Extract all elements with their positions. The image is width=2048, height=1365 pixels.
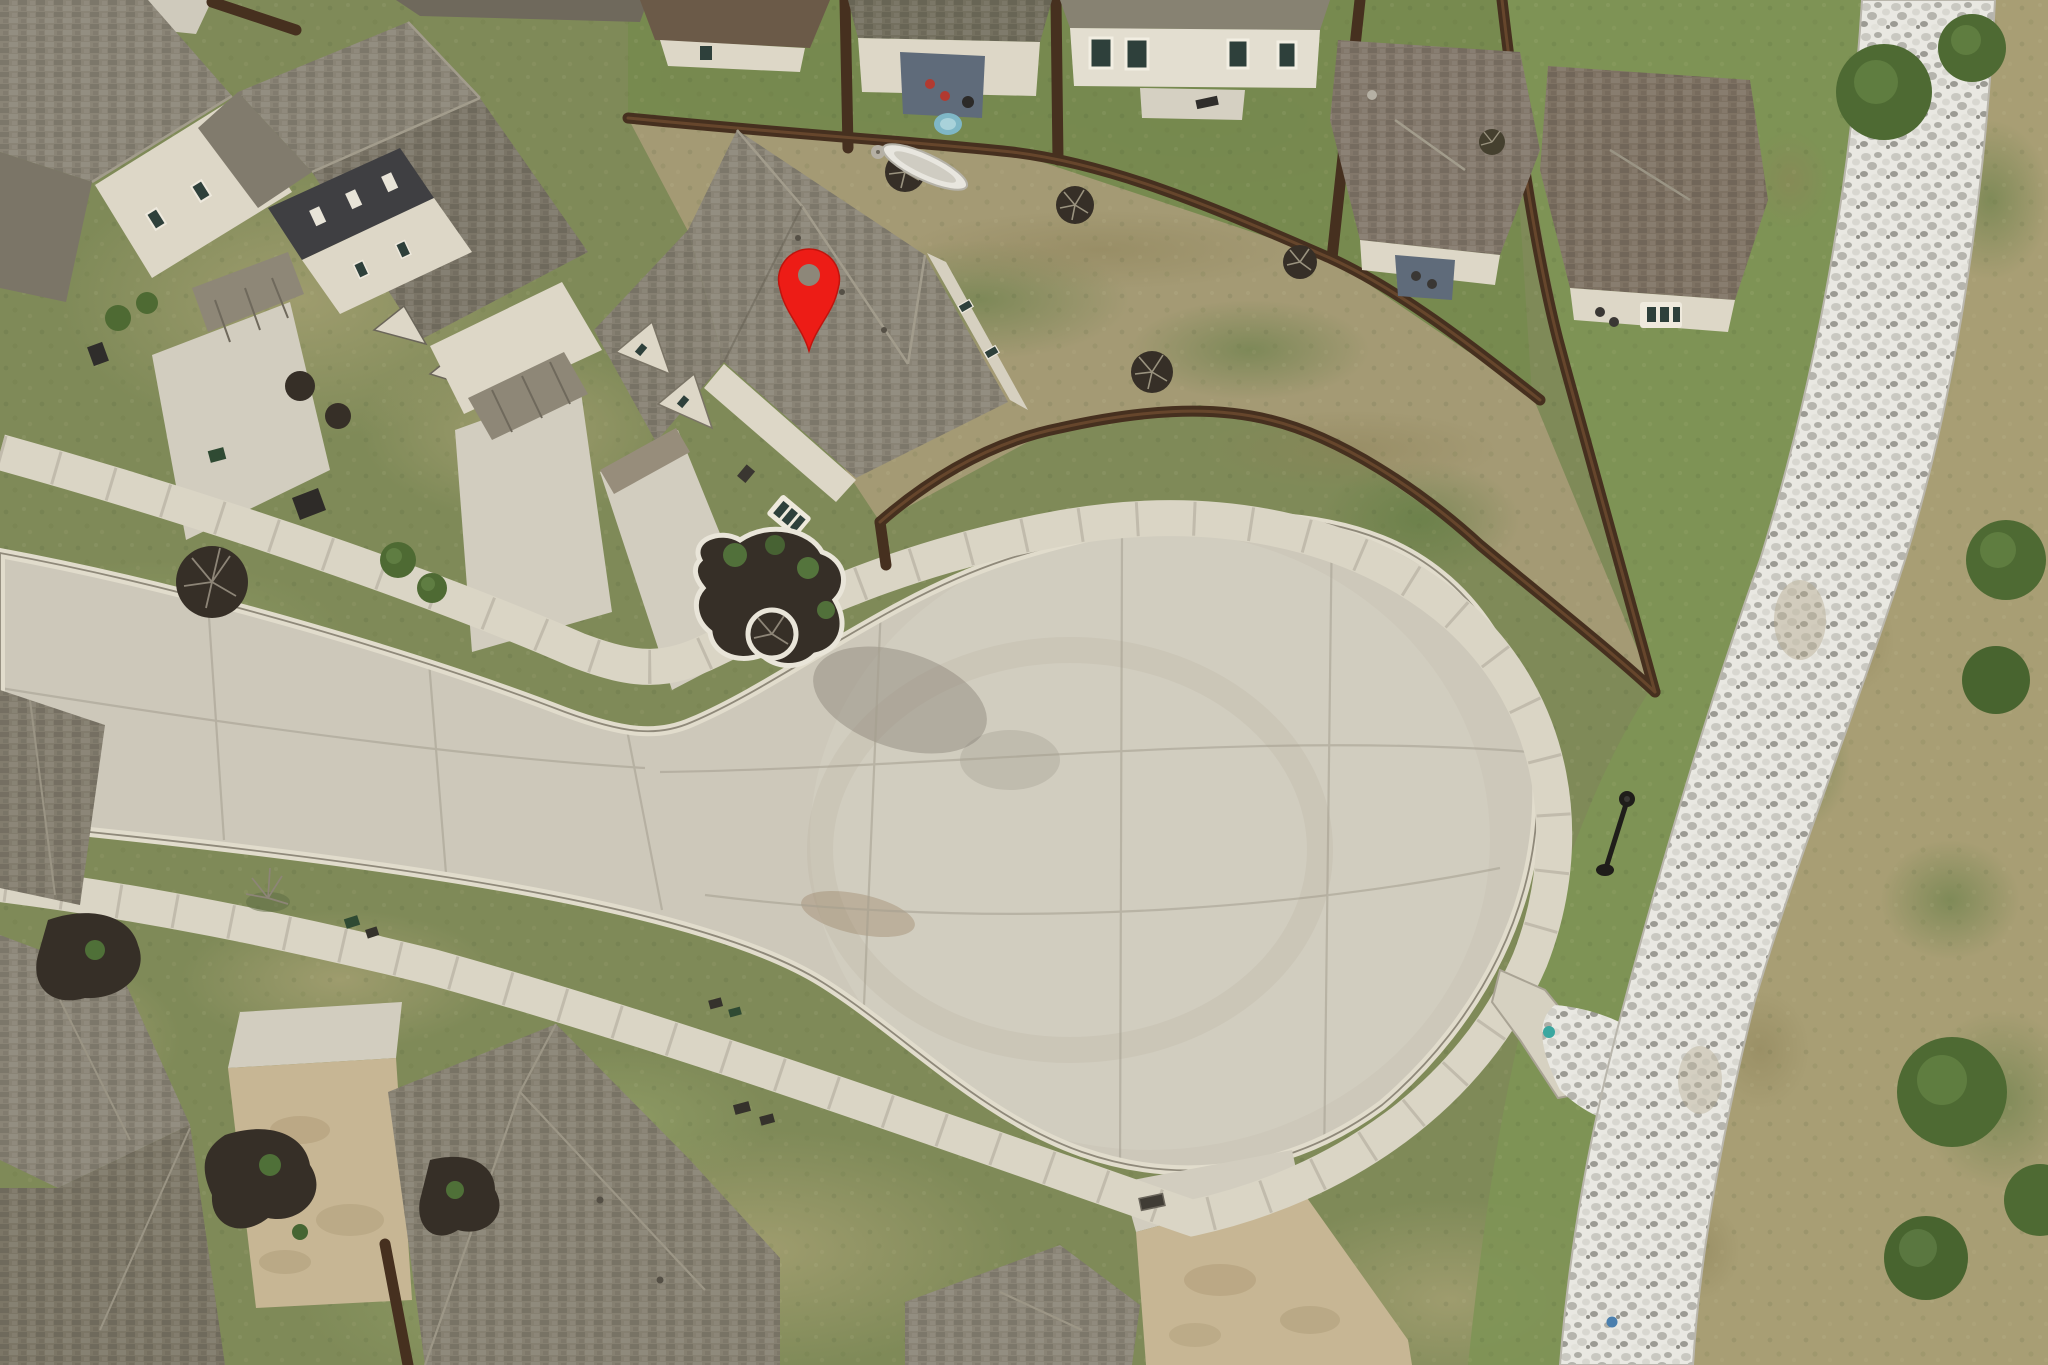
- bush: [723, 543, 747, 567]
- patio-furniture: [1609, 317, 1619, 327]
- roof-vent: [795, 235, 801, 241]
- roof-vent: [597, 1197, 604, 1204]
- bush: [259, 1154, 281, 1176]
- debris-blue: [1607, 1317, 1618, 1328]
- fence-divider-2: [1056, 0, 1058, 160]
- aerial-photo-cul-de-sac: [0, 0, 2048, 1365]
- house-north-5: [1540, 66, 1768, 332]
- bush: [292, 1224, 308, 1240]
- patio-chair: [925, 79, 935, 89]
- roof-vent: [881, 327, 887, 333]
- window: [700, 46, 712, 60]
- mulch-circle: [325, 403, 351, 429]
- fence-divider-1: [845, 0, 848, 148]
- covered-patio: [900, 52, 985, 118]
- pin-hole: [798, 264, 820, 286]
- tree-bed: [1131, 351, 1173, 393]
- bush: [817, 601, 835, 619]
- window: [1090, 38, 1112, 68]
- satellite-dish: [1367, 90, 1377, 100]
- bush: [446, 1181, 464, 1199]
- roof: [1060, 0, 1330, 30]
- aerial-photo-frame: [0, 0, 2048, 1365]
- grill: [962, 96, 974, 108]
- shrub: [105, 305, 131, 331]
- subject-front-bed: [695, 529, 843, 665]
- shrub: [136, 292, 158, 314]
- window: [1126, 39, 1148, 69]
- patio-furniture: [1595, 307, 1605, 317]
- patio-furniture: [1411, 271, 1421, 281]
- patio-chair: [940, 91, 950, 101]
- bush: [85, 940, 105, 960]
- patio-slab: [1140, 88, 1245, 120]
- tree-bed: [1283, 245, 1317, 279]
- driveway-apron-bottom-1: [228, 1002, 402, 1068]
- bush: [797, 557, 819, 579]
- mulch-circle: [285, 371, 315, 401]
- bush: [765, 535, 785, 555]
- house-north-1: [640, 0, 830, 72]
- tree-bed: [1479, 129, 1505, 155]
- teal-utility-marker: [1543, 1026, 1555, 1038]
- patio-furniture: [1427, 279, 1437, 289]
- tree-bed: [1056, 186, 1094, 224]
- roof-vent: [839, 289, 845, 295]
- window: [1228, 40, 1248, 68]
- window: [1278, 42, 1296, 68]
- lamp-base: [1596, 864, 1614, 876]
- covered-patio: [1395, 255, 1455, 300]
- fence-return-stub: [880, 522, 886, 565]
- roof-vent: [657, 1277, 664, 1284]
